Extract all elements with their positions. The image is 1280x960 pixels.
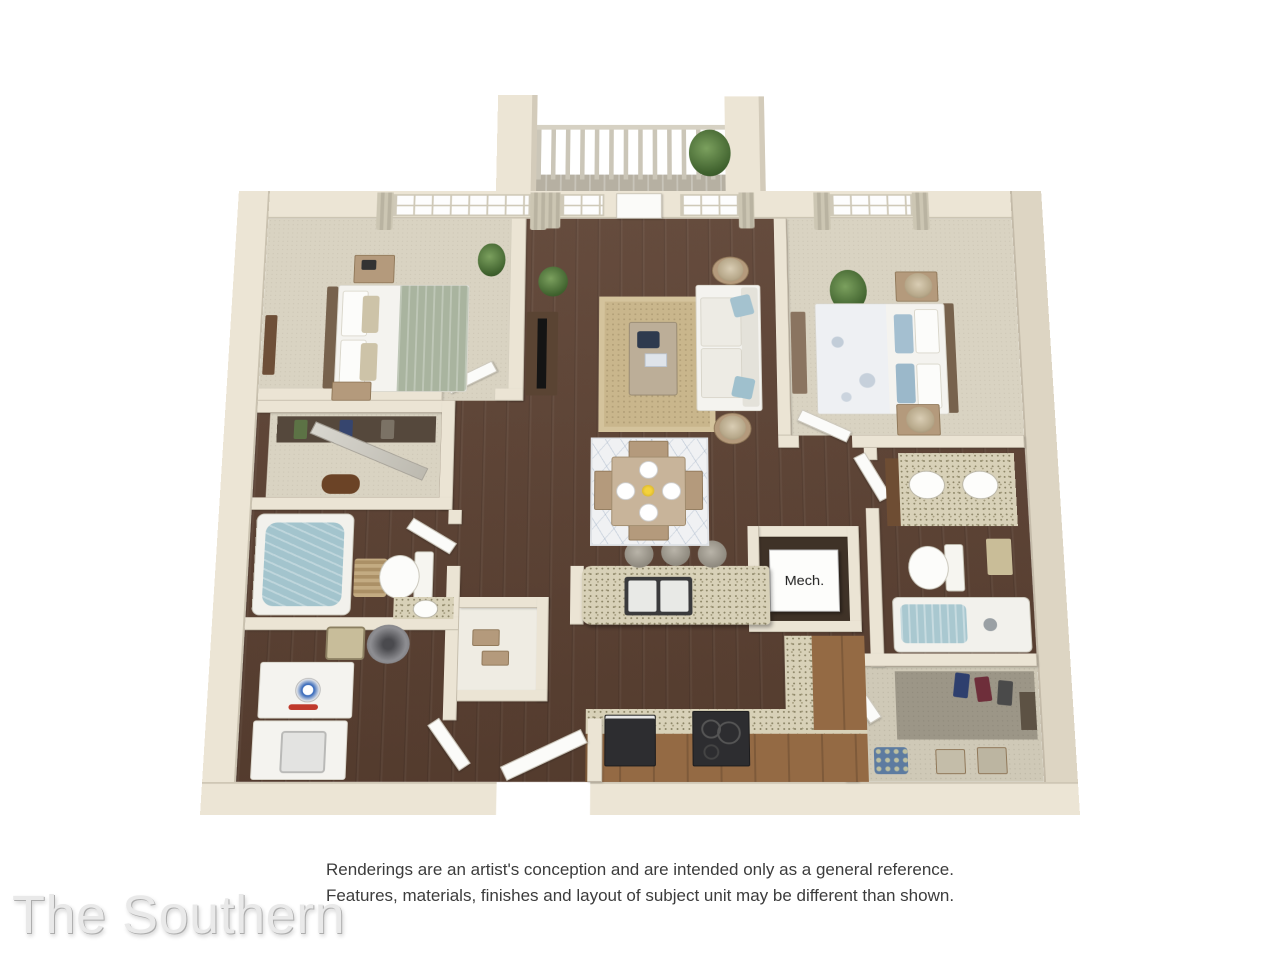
bedroom2-bed xyxy=(814,303,949,414)
towel-icon xyxy=(986,539,1013,575)
plan-title: The Southern xyxy=(12,884,345,946)
living-window-right xyxy=(680,194,739,216)
storage-box-icon xyxy=(977,747,1008,774)
blue-pillow-icon xyxy=(894,314,914,353)
storage-bin-icon xyxy=(874,747,909,774)
alarm-clock-icon xyxy=(361,260,376,270)
hanging-clothes-icon xyxy=(953,672,970,698)
sofa xyxy=(695,285,762,411)
bedroom1-right-wall xyxy=(508,219,526,401)
refrigerator-icon xyxy=(604,715,656,767)
kitchen-counter-right-top xyxy=(784,636,814,730)
balcony-door xyxy=(616,193,662,218)
dryer-door-icon xyxy=(279,731,327,773)
outer-wall-bottom-right xyxy=(590,782,1080,815)
floorplan-3d: Mech. xyxy=(200,191,1080,815)
dining-table xyxy=(611,457,686,526)
bathtub2 xyxy=(892,597,1033,653)
bedroom1-nightstand xyxy=(331,382,371,401)
accent-pillow-icon xyxy=(359,343,377,381)
coffee-table xyxy=(629,322,678,396)
sink-basin-right xyxy=(660,580,688,611)
hanging-clothes-icon xyxy=(997,680,1013,706)
closet2-shelf-unit-icon xyxy=(1019,692,1037,730)
bedroom2-blanket xyxy=(815,304,890,414)
plate-icon xyxy=(639,461,658,479)
bathtub1 xyxy=(251,513,354,615)
mech-wall-top xyxy=(747,526,859,537)
plate-icon xyxy=(639,504,658,522)
linen-closet-top-wall xyxy=(459,597,548,608)
linen-shelf-item-icon xyxy=(472,629,500,646)
linen-closet-bottom-wall xyxy=(457,690,548,701)
kitchen-half-wall xyxy=(587,719,602,782)
bedroom1-bottom-wall-b xyxy=(495,389,523,401)
balcony xyxy=(496,95,770,196)
book-icon xyxy=(645,353,667,367)
mech-unit: Mech. xyxy=(769,550,840,612)
island-sink xyxy=(624,577,692,616)
mech-label: Mech. xyxy=(784,573,824,589)
bedroom1-window xyxy=(393,194,531,216)
bathtub2-water xyxy=(900,604,968,643)
table-lamp-icon xyxy=(717,258,743,281)
plate-icon xyxy=(616,482,635,500)
living-curtain-left-icon xyxy=(545,192,561,228)
bathroom2-sink-right xyxy=(962,471,1000,499)
disclaimer-line1: Renderings are an artist's conception an… xyxy=(0,857,1280,883)
bedroom2-bottom-wall-a xyxy=(778,436,799,448)
balcony-pillar-left-icon xyxy=(496,95,538,196)
blue-pillow-icon xyxy=(896,364,916,404)
bedroom2-lamp-icon xyxy=(904,273,933,298)
hanging-clothes-icon xyxy=(293,420,307,439)
table-lamp-icon xyxy=(719,415,746,439)
washer-icon xyxy=(257,662,354,719)
laundry-right-wall xyxy=(443,630,459,720)
linen-closet-right-wall xyxy=(536,597,549,701)
burner-icon xyxy=(717,721,741,744)
sofa-pillow-icon xyxy=(731,376,756,400)
dryer-icon xyxy=(250,720,348,780)
linen-closet-floor xyxy=(457,608,537,690)
pillow-icon xyxy=(914,309,940,353)
burner-icon xyxy=(703,744,719,759)
tv-icon xyxy=(537,319,547,389)
tray-icon xyxy=(637,331,659,348)
bedroom2-bottom-wall-b xyxy=(852,436,1025,448)
bathtub1-water xyxy=(262,522,345,606)
bedroom1-bed xyxy=(334,285,470,392)
stove-icon xyxy=(692,711,750,767)
bedroom2-dresser xyxy=(790,312,807,394)
tub-faucet-icon xyxy=(983,618,997,631)
hanging-clothes-icon xyxy=(381,420,395,439)
laundry-basket-icon xyxy=(325,627,365,661)
closet1-bag-icon xyxy=(321,474,360,494)
living-curtain-right-icon xyxy=(738,192,754,228)
plate-icon xyxy=(662,482,681,500)
bedroom1-curtain-left-icon xyxy=(376,192,394,230)
pillow-icon xyxy=(916,364,942,409)
washer-button-icon xyxy=(288,704,318,710)
bedroom2-lamp-icon xyxy=(906,407,935,433)
balcony-plant-icon xyxy=(689,130,731,177)
bathroom2-bottom-wall xyxy=(841,653,1037,666)
washer-dial-icon xyxy=(295,678,322,703)
living-window-left xyxy=(560,194,604,216)
storage-box-icon xyxy=(935,749,966,774)
closet1-top-wall xyxy=(257,401,455,413)
floorplan-image: Mech. xyxy=(0,0,1280,960)
bedroom2-curtain-left-icon xyxy=(813,192,831,230)
bedroom2-curtain-right-icon xyxy=(912,192,930,230)
sink-basin-left xyxy=(628,580,656,611)
linen-shelf-item2-icon xyxy=(481,651,509,666)
bedroom1-blanket xyxy=(397,286,469,391)
bathroom1-right-wall-a xyxy=(448,510,462,524)
outer-wall-bottom-left xyxy=(200,782,497,815)
bedroom2-window xyxy=(830,194,913,216)
bathroom2-sink-left xyxy=(908,471,945,499)
balcony-pillar-right-icon xyxy=(724,96,765,195)
kitchen-counter-right xyxy=(808,636,868,730)
accent-pillow-icon xyxy=(361,296,379,333)
flower-centerpiece-icon xyxy=(642,485,654,497)
closet1-bottom-wall xyxy=(252,497,453,510)
